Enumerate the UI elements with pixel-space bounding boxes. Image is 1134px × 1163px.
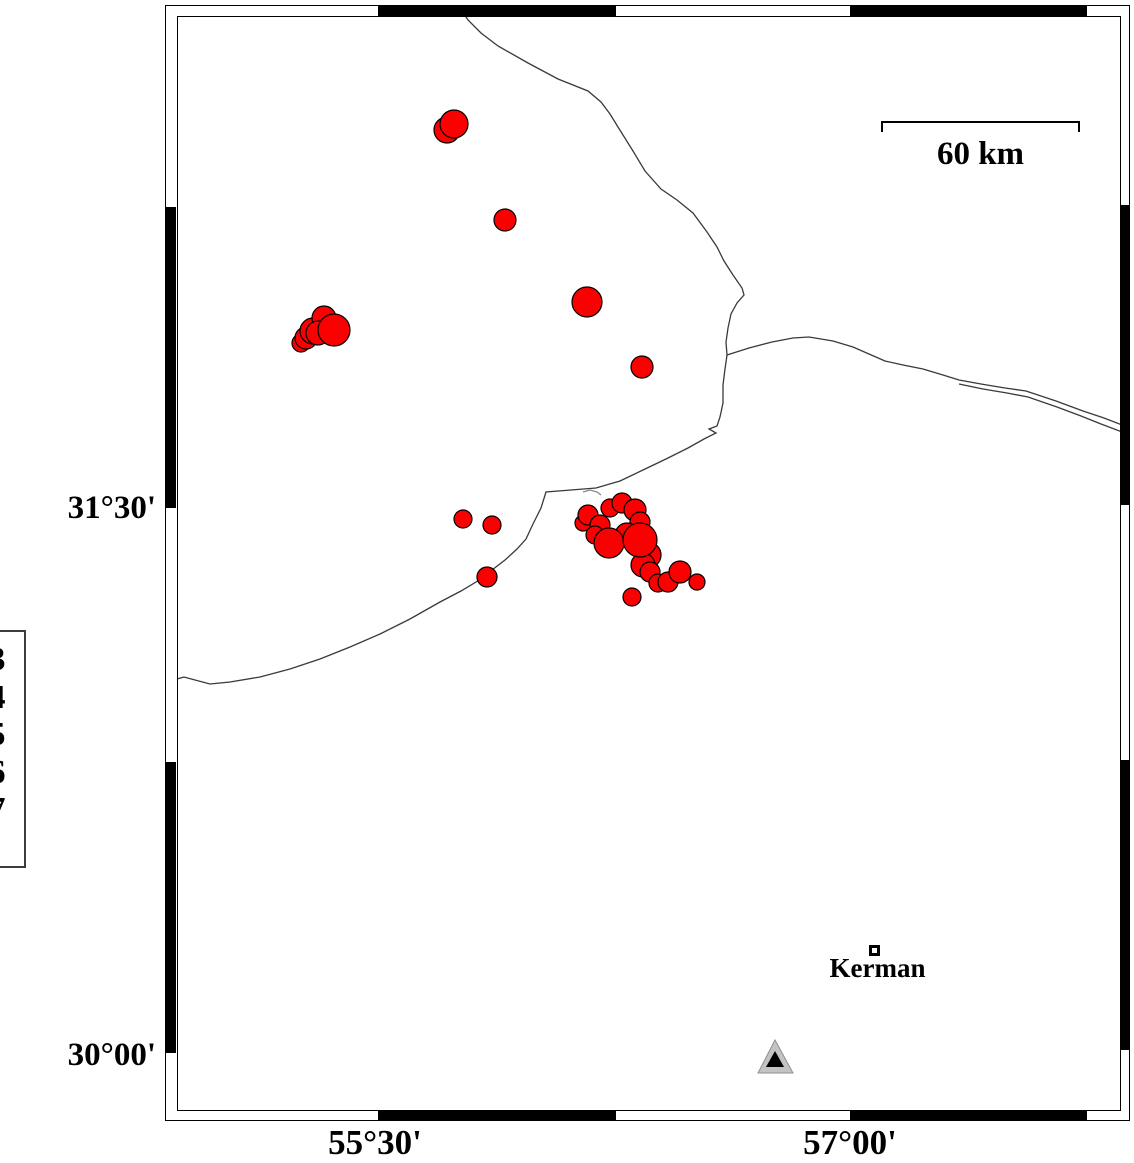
epicenter-marker (594, 528, 624, 558)
epicenter-marker (318, 314, 350, 346)
scale-bar-label: 60 km (881, 136, 1080, 173)
legend-magnitude-4: 4 (0, 678, 10, 718)
city-label: Kerman (795, 953, 960, 984)
fault-line (460, 8, 1122, 425)
epicenter-marker (483, 516, 501, 534)
epicenter-marker (669, 561, 691, 583)
lat-tick-label-30-00: 30°00' (28, 1035, 156, 1075)
epicenter-marker (440, 110, 468, 138)
lat-tick-label-31-30: 31°30' (28, 488, 156, 528)
epicenter-marker (623, 523, 657, 557)
legend-magnitude-6: 6 (0, 753, 10, 793)
scale-bar (881, 121, 1080, 132)
epicenter-marker (477, 567, 497, 587)
epicenter-marker (454, 510, 472, 528)
epicenter-marker (689, 574, 705, 590)
legend-magnitude-7: 7 (0, 790, 10, 830)
fault-line (959, 384, 1122, 432)
map-canvas (0, 0, 1134, 1161)
lon-tick-label-55-30: 55°30' (275, 1123, 475, 1163)
epicenter-marker (572, 287, 602, 317)
epicenter-marker (623, 588, 641, 606)
fault-line (583, 490, 601, 495)
legend-magnitude-5: 5 (0, 715, 10, 755)
lon-tick-label-57-00: 57°00' (750, 1123, 950, 1163)
epicenter-marker (494, 209, 516, 231)
legend-magnitude-3: 3 (0, 640, 10, 680)
epicenter-marker (631, 356, 653, 378)
